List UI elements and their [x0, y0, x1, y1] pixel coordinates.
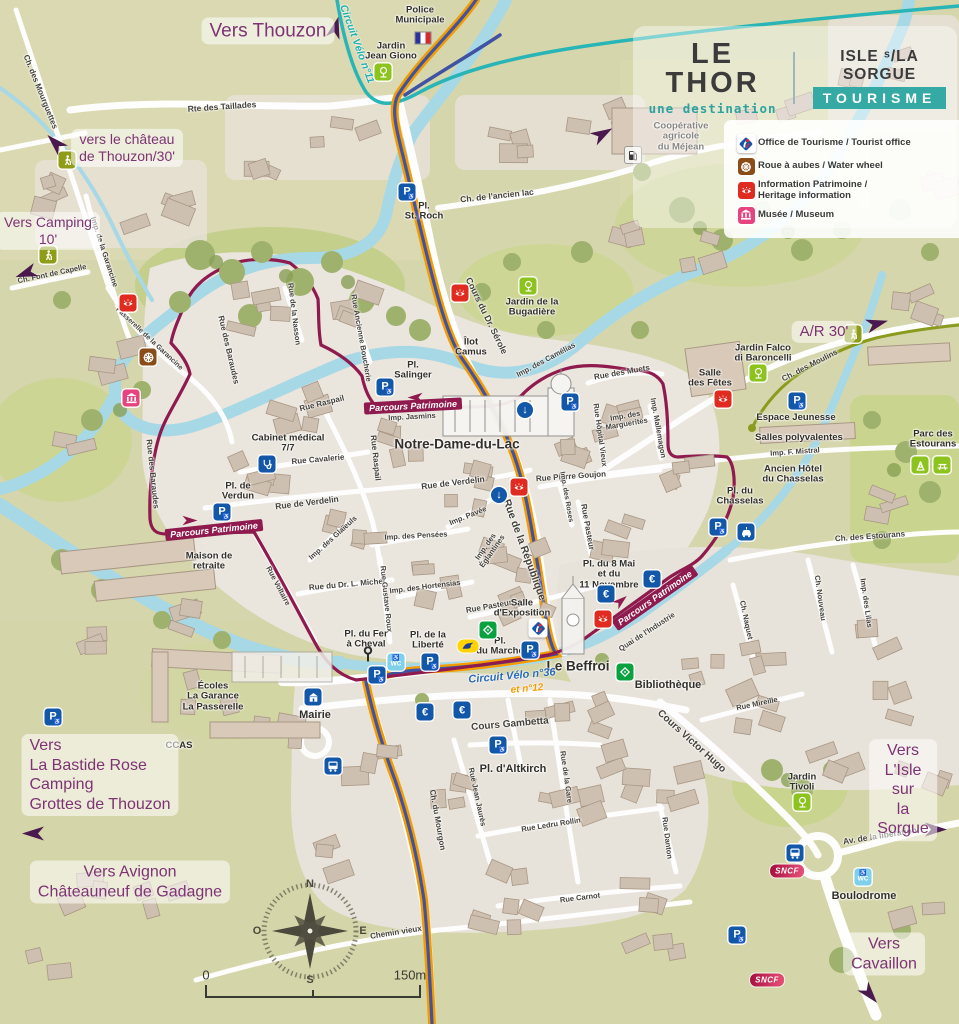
tourist-office-icon — [734, 134, 758, 153]
legend-item: Roue à aubes / Water wheel — [734, 158, 959, 175]
legend-item: Office de Tourisme / Tourist office — [734, 134, 959, 153]
compass-south-label: S — [306, 974, 313, 986]
tourist-map-le-thor: Ch. des MourguettesRte des TailladesCh. … — [0, 0, 959, 1024]
compass-rose — [264, 885, 356, 977]
logo-title: LE THOR — [642, 40, 783, 98]
legend-item-label: Office de Tourisme / Tourist office — [758, 138, 911, 149]
heritage-info-icon — [734, 182, 758, 199]
legend-item-label: Information Patrimoine / Heritage inform… — [758, 180, 867, 202]
compass-east-label: E — [359, 925, 366, 937]
museum-icon — [734, 207, 758, 224]
legend-item: Musée / Museum — [734, 207, 959, 224]
logo-divider — [793, 52, 795, 104]
logo-block: LE THOR une destination ISLE ˢ/LA SORGUE… — [642, 40, 954, 116]
map-legend: Office de Tourisme / Tourist officeRoue … — [724, 120, 959, 238]
logo-org-name: ISLE ˢ/LA SORGUE — [805, 48, 954, 84]
scale-distance-label: 150m — [394, 968, 427, 983]
logo-subtitle: une destination — [642, 101, 783, 116]
compass-north-label: N — [306, 878, 314, 890]
compass-west-label: O — [253, 925, 262, 937]
scale-zero-label: 0 — [202, 968, 209, 983]
legend-item: Information Patrimoine / Heritage inform… — [734, 180, 959, 202]
legend-item-label: Roue à aubes / Water wheel — [758, 161, 883, 172]
water-wheel-icon — [734, 158, 758, 175]
legend-item-label: Musée / Museum — [758, 210, 834, 221]
logo-org-tourisme: TOURISME — [813, 87, 947, 109]
